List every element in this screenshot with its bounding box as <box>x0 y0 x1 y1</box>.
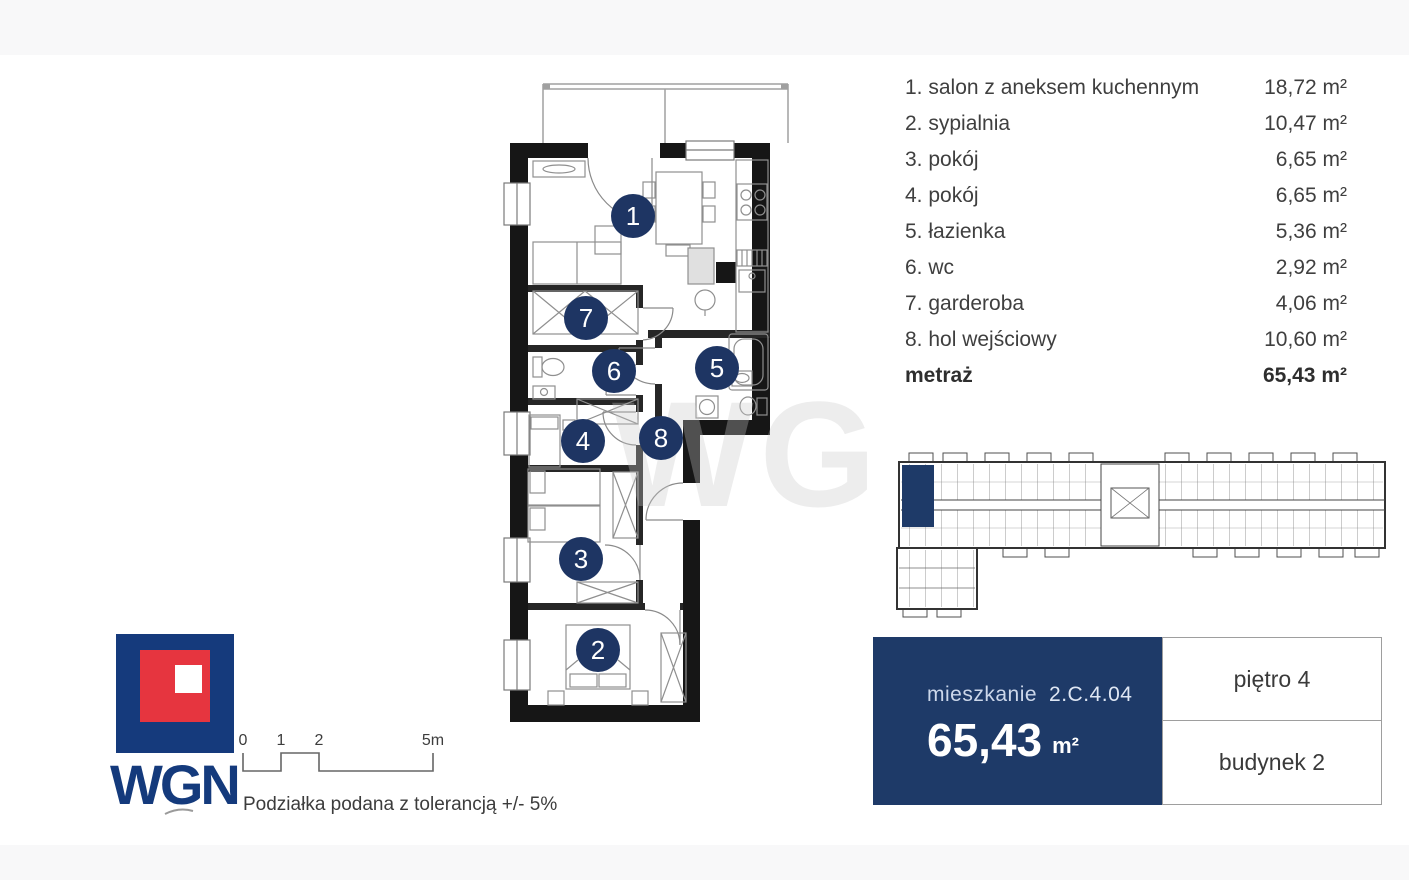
room-area: 18,72 m² <box>1264 76 1347 100</box>
scale-tick-5m: 5m <box>422 732 444 749</box>
legend-row: 6. wc 2,92 m² <box>905 256 1347 292</box>
room-area: 2,92 m² <box>1276 256 1347 280</box>
floor-box: piętro 4 <box>1163 638 1381 721</box>
logo-red-square <box>140 650 210 722</box>
sofa <box>533 226 621 284</box>
bed-room4 <box>529 415 560 467</box>
highlighted-unit <box>902 465 934 527</box>
scale-tick-2: 2 <box>315 732 324 749</box>
unit-label-prefix: mieszkanie <box>927 683 1037 706</box>
scale-bar-line <box>243 753 433 771</box>
top-margin-band <box>0 0 1409 55</box>
unit-card: mieszkanie2.C.4.04 65,43 m² <box>873 637 1162 805</box>
room-area: 10,60 m² <box>1264 328 1347 352</box>
legend-total-row: metraż 65,43 m² <box>905 364 1347 398</box>
scale-tick-1: 1 <box>277 732 286 749</box>
room-label: 1. salon z aneksem kuchennym <box>905 76 1199 100</box>
floor-plan <box>495 70 805 730</box>
info-boxes: piętro 4 budynek 2 <box>1162 637 1382 805</box>
room-area: 4,06 m² <box>1276 292 1347 316</box>
unit-area: 65,43 m² <box>927 717 1162 763</box>
room-label: 5. łazienka <box>905 220 1005 244</box>
wardrobe-nook <box>613 472 638 538</box>
room-badge-1: 1 <box>611 194 655 238</box>
room-area: 5,36 m² <box>1276 220 1347 244</box>
legend-row: 1. salon z aneksem kuchennym 18,72 m² <box>905 76 1347 112</box>
room-badge-5: 5 <box>695 346 739 390</box>
sideboard <box>533 161 585 177</box>
scale-note: Podziałka podana z tolerancją +/- 5% <box>243 794 557 816</box>
room-label: 8. hol wejściowy <box>905 328 1057 352</box>
appliance-niche <box>688 248 715 316</box>
room-area: 10,47 m² <box>1264 112 1347 136</box>
room-label: 7. garderoba <box>905 292 1024 316</box>
room-badge-2: 2 <box>576 628 620 672</box>
room-badge-6: 6 <box>592 349 636 393</box>
logo-swoosh <box>163 805 195 817</box>
legend-row: 7. garderoba 4,06 m² <box>905 292 1347 328</box>
nightstand-left-room2 <box>548 691 564 705</box>
wgn-logo-mark <box>116 634 234 753</box>
room-label: 6. wc <box>905 256 954 280</box>
room-badge-4: 4 <box>561 419 605 463</box>
bed-b-room3 <box>528 506 600 542</box>
legend-row: 8. hol wejściowy 10,60 m² <box>905 328 1347 364</box>
bottom-margin-band <box>0 845 1409 880</box>
legend-row: 3. pokój 6,65 m² <box>905 148 1347 184</box>
building-box: budynek 2 <box>1163 721 1381 804</box>
wardrobe-room3 <box>577 582 638 603</box>
unit-id: 2.C.4.04 <box>1049 683 1132 706</box>
legend-row: 4. pokój 6,65 m² <box>905 184 1347 220</box>
building-overview-plan <box>893 448 1393 618</box>
legend-row: 5. łazienka 5,36 m² <box>905 220 1347 256</box>
room-label: 4. pokój <box>905 184 979 208</box>
logo-white-square <box>175 665 202 693</box>
room-badge-7: 7 <box>564 296 608 340</box>
room-area: 6,65 m² <box>1276 184 1347 208</box>
toilet-wc <box>533 357 564 377</box>
total-area: 65,43 m² <box>1263 364 1347 388</box>
scale-tick-0: 0 <box>239 732 248 749</box>
washbasin-wc <box>533 386 555 399</box>
unit-area-value: 65,43 <box>927 717 1042 763</box>
wardrobe-room2 <box>661 633 686 702</box>
washing-machine <box>696 396 718 418</box>
legend-row: 2. sypialnia 10,47 m² <box>905 112 1347 148</box>
room-label: 3. pokój <box>905 148 979 172</box>
unit-area-unit: m² <box>1052 733 1079 763</box>
room-label: 2. sypialnia <box>905 112 1010 136</box>
room-badge-8: 8 <box>639 416 683 460</box>
bed-a-room3 <box>528 469 600 505</box>
unit-label: mieszkanie2.C.4.04 <box>927 683 1162 707</box>
legend: 1. salon z aneksem kuchennym 18,72 m² 2.… <box>905 76 1347 398</box>
balcony <box>543 84 788 143</box>
nightstand-right-room2 <box>632 691 648 705</box>
room-badge-3: 3 <box>559 537 603 581</box>
floorplan-flyer: { "legend": { "rows": [ {"label": "1. sa… <box>0 0 1409 880</box>
scale-bar: 0 1 2 5m <box>233 731 448 781</box>
total-label: metraż <box>905 364 973 388</box>
room-area: 6,65 m² <box>1276 148 1347 172</box>
